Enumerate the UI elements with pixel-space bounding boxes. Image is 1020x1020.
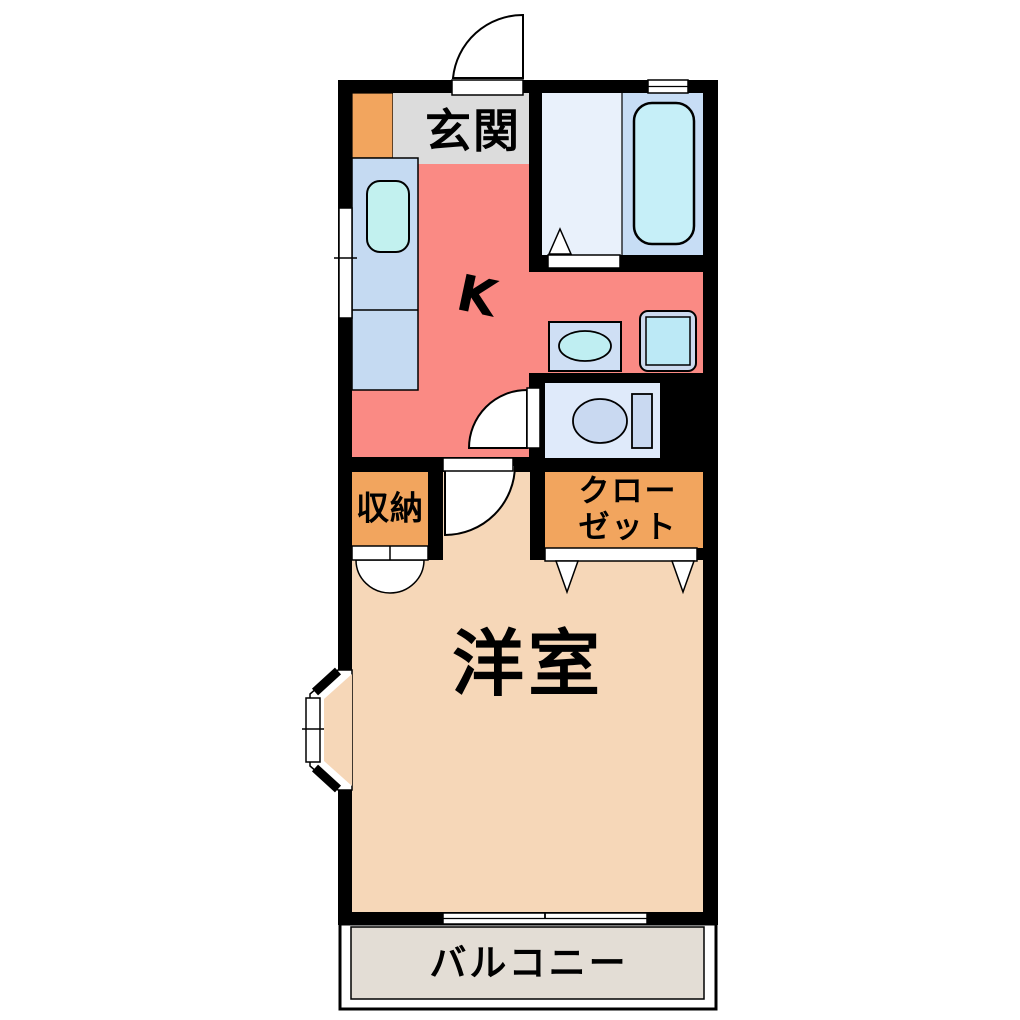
entrance-cabinet: [352, 93, 393, 158]
kitchen-window: [339, 208, 352, 318]
washing-machine-drum: [646, 317, 690, 365]
entrance-door-sill: [452, 80, 523, 95]
western-room-label: 洋室: [452, 628, 604, 700]
closet-label: クロー ゼット: [579, 474, 678, 545]
closet-door-band: [545, 548, 697, 561]
floorplan-canvas: 玄関 K 収納 クロー ゼット 洋室 バルコニー: [0, 0, 1020, 1020]
closet-label-line1: クロー: [579, 474, 678, 510]
bathtub: [634, 103, 694, 244]
toilet-bowl: [573, 399, 627, 443]
bay-window-glass: [306, 698, 320, 762]
bath-floor: [542, 93, 622, 255]
entrance-door-swing: [453, 15, 523, 78]
room-floor: [352, 560, 703, 912]
balcony-label: バルコニー: [429, 945, 628, 982]
entrance-label: 玄関: [425, 108, 521, 154]
washbasin-bowl: [559, 331, 611, 361]
kitchen-floor-b: [352, 390, 418, 457]
room-door-leaf: [443, 458, 513, 471]
kitchen-sink: [367, 181, 409, 252]
toilet-door-leaf: [527, 388, 540, 448]
closet-label-line2: ゼット: [579, 510, 678, 546]
toilet-tank: [632, 394, 652, 448]
bath-door-sill: [548, 255, 620, 268]
storage-label: 収納: [356, 492, 424, 525]
